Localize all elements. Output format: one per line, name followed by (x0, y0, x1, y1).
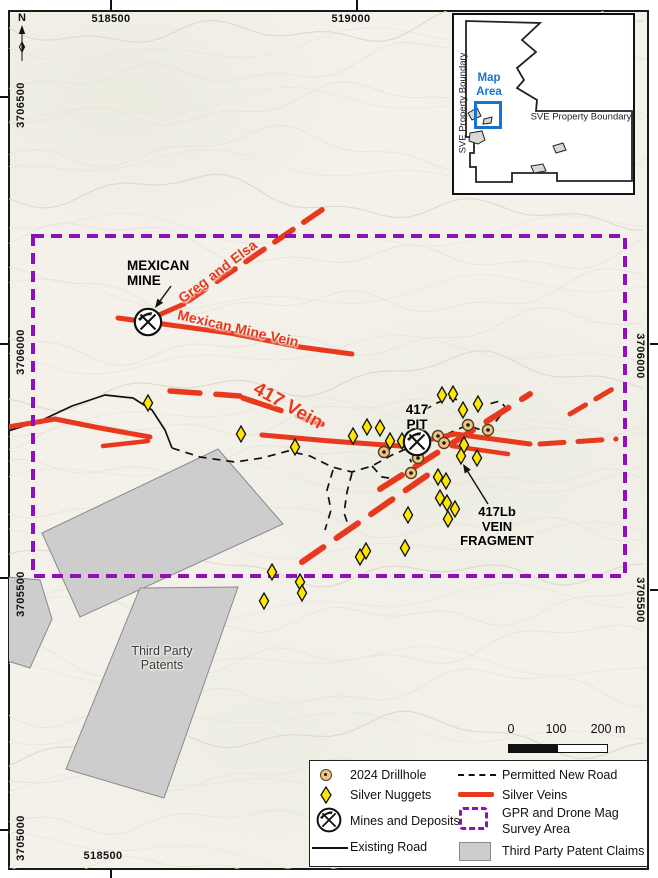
mine-symbol (404, 429, 430, 455)
legend-label: GPR and Drone Mag Survey Area (502, 806, 650, 837)
legend-label: Existing Road (350, 840, 427, 854)
legend-label: Mines and Deposits (350, 814, 460, 828)
north-needle-icon (14, 24, 30, 64)
contour-line (6, 223, 643, 269)
permitted-new-road (325, 470, 333, 530)
silver-vein (188, 203, 332, 301)
legend-label: Silver Veins (502, 788, 567, 802)
grid-label-northing: 3706000 (634, 333, 646, 379)
legend-label: Permitted New Road (502, 768, 617, 782)
silver-nugget-marker (362, 419, 371, 435)
north-arrow: N (14, 12, 30, 69)
silver-nugget-marker (375, 420, 384, 436)
silver-vein (170, 391, 240, 396)
contour-line (6, 274, 652, 309)
contour-line (6, 335, 652, 374)
mining-map-page: MEXICAN MINEGreg and ElsaMexican Mine Ve… (0, 0, 658, 878)
grid-label-easting: 518500 (91, 13, 130, 25)
sve-property-boundary-label-horizontal: SVE Property Boundary (531, 112, 632, 123)
grid-label-northing: 3705500 (634, 577, 646, 623)
grid-label-northing: 3705500 (15, 571, 27, 617)
silver-vein (103, 441, 148, 446)
legend-label: Third Party Patent Claims (502, 844, 644, 858)
legend-label: Silver Nuggets (350, 788, 431, 802)
inset-claim-polygon (531, 164, 546, 173)
gpr-survey-area-icon (459, 807, 488, 830)
mine-symbol (135, 309, 161, 335)
drillhole-marker-2024 (483, 425, 494, 436)
drillhole-icon (320, 769, 332, 781)
silver-vein (570, 387, 616, 414)
silver-nugget-marker (403, 507, 412, 523)
existing-road-icon (312, 847, 348, 849)
permitted-new-road-icon (458, 774, 496, 776)
silver-nugget-marker (458, 402, 467, 418)
annotation-arrow (463, 464, 488, 504)
patent-claims-icon (459, 842, 491, 861)
permitted-new-road (344, 473, 352, 530)
silver-nugget-icon (320, 786, 332, 807)
contour-line (6, 463, 652, 493)
silver-nugget-marker (259, 593, 268, 609)
silver-vein (8, 419, 150, 437)
silver-nugget-marker (441, 473, 450, 489)
legend-box: 2024 Drillhole Silver Nuggets Mines and … (309, 760, 648, 867)
grid-tick (0, 577, 8, 579)
annotation-arrow (155, 286, 171, 308)
contour-line (6, 213, 652, 246)
scale-label-100: 100 (546, 722, 567, 736)
silver-nugget-marker (443, 511, 452, 527)
sve-property-boundary-label-vertical: SVE Property Boundary (458, 53, 469, 154)
grid-tick (356, 0, 358, 11)
contour-line (6, 445, 643, 485)
grid-label-northing: 3706000 (15, 329, 27, 375)
drillhole-marker-2024 (439, 438, 450, 449)
grid-tick (0, 96, 8, 98)
drillhole-marker-2024 (406, 468, 417, 479)
drillhole-marker-2024 (463, 420, 474, 431)
scale-label-0: 0 (508, 722, 515, 736)
grid-label-northing: 3705000 (15, 815, 27, 861)
contour-line (6, 625, 643, 677)
contour-line (6, 351, 643, 411)
legend-label: 2024 Drillhole (350, 768, 426, 782)
silver-nugget-marker (472, 450, 481, 466)
grid-tick (650, 589, 658, 591)
grid-label-easting: 519000 (331, 13, 370, 25)
silver-vein-icon (458, 792, 494, 797)
silver-nugget-marker (433, 469, 442, 485)
silver-nugget-marker (437, 387, 446, 403)
grid-tick (0, 343, 8, 345)
grid-tick (0, 829, 8, 831)
grid-tick (110, 0, 112, 10)
map-area-extent-rect (474, 101, 502, 129)
scale-label-200: 200 m (591, 722, 626, 736)
grid-tick (650, 343, 658, 345)
silver-vein (540, 439, 616, 444)
silver-nugget-marker (473, 396, 482, 412)
drillhole-marker-2024 (379, 447, 390, 458)
grid-label-easting: 518500 (83, 850, 122, 862)
silver-nugget-marker (400, 540, 409, 556)
grid-label-northing: 3706500 (15, 82, 27, 128)
grid-tick (110, 870, 112, 878)
north-label: N (14, 12, 30, 24)
silver-nugget-marker (236, 426, 245, 442)
third-party-patent-polygon (66, 587, 238, 798)
map-area-label: Map Area (466, 72, 512, 100)
scale-bar-graphic (508, 744, 608, 753)
mine-icon (316, 807, 342, 836)
